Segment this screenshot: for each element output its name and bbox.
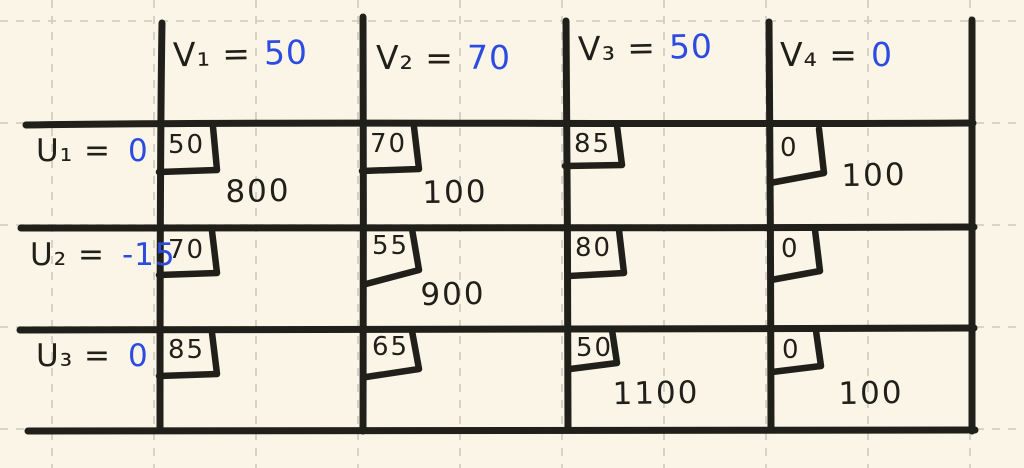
column-header-v3-value: 50 — [669, 27, 714, 67]
row-header-u1: U₁ =0 — [36, 136, 149, 167]
column-header-v3: V₃ =50 — [578, 30, 714, 66]
allocation-r1c4: 100 — [841, 160, 907, 192]
cost-r1c2: 70 — [370, 131, 407, 157]
row-line-4 — [28, 430, 975, 431]
column-header-v2-label: V₂ = — [376, 38, 454, 77]
row-header-u1-value: 0 — [128, 133, 149, 169]
allocation-r3c4: 100 — [838, 378, 904, 410]
cost-r2c1: 70 — [168, 237, 205, 263]
row-line-2 — [21, 227, 974, 228]
column-header-v1: V₁ =50 — [173, 36, 309, 72]
allocation-r1c2: 100 — [422, 177, 488, 209]
allocation-r3c3: 1100 — [612, 378, 699, 411]
cost-r1c4: 0 — [780, 135, 799, 161]
cost-r2c2: 55 — [372, 233, 409, 259]
cost-boxes — [159, 126, 824, 377]
cost-r3c3: 50 — [576, 335, 613, 361]
cost-r2c3: 80 — [575, 235, 612, 261]
cost-r2c4: 0 — [781, 236, 800, 262]
row-header-u2-label: U₂ = — [30, 237, 105, 273]
column-header-v2: V₂ =70 — [376, 41, 511, 74]
row-line-3 — [20, 328, 974, 330]
cost-r1c1: 50 — [168, 132, 205, 158]
column-header-v3-label: V₃ = — [578, 28, 657, 69]
row-header-u3: U₃ =0 — [36, 341, 149, 372]
column-header-v2-value: 70 — [467, 38, 511, 77]
row-line-1 — [26, 123, 973, 125]
row-header-u3-label: U₃ = — [36, 338, 111, 374]
cost-r1c3: 85 — [574, 131, 611, 157]
column-header-v4-label: V₄ = — [780, 35, 858, 74]
column-header-v1-value: 50 — [264, 33, 309, 73]
cost-r3c2: 65 — [372, 334, 409, 360]
row-header-u2: U₂ =-15 — [30, 240, 176, 271]
row-header-u1-label: U₁ = — [36, 133, 111, 169]
cost-r3c1: 85 — [168, 337, 205, 363]
allocation-r1c1: 800 — [225, 176, 291, 208]
table-lines — [20, 17, 975, 431]
worksheet-canvas: V₁ =50 V₂ =70 V₃ =50 V₄ =0 U₁ =0 U₂ =-15… — [0, 0, 1024, 468]
column-header-v1-label: V₁ = — [173, 34, 252, 75]
column-header-v4: V₄ =0 — [780, 38, 893, 71]
allocation-r2c2: 900 — [420, 279, 486, 311]
column-header-v4-value: 0 — [871, 35, 893, 74]
cost-r3c4: 0 — [782, 337, 801, 363]
row-header-u3-value: 0 — [128, 338, 149, 374]
